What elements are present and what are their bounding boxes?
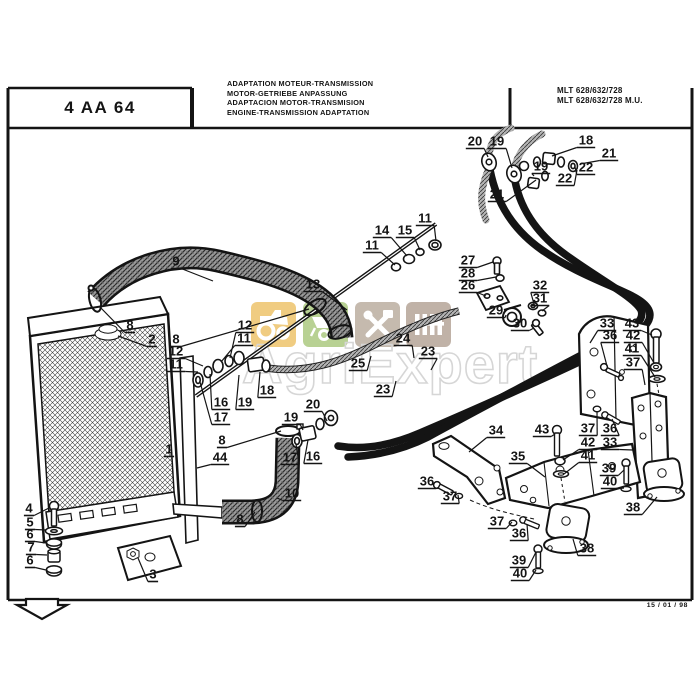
callout-leader	[35, 568, 46, 571]
callout-leader	[527, 524, 528, 541]
callout-label: 14	[375, 223, 390, 238]
callout-leader	[434, 226, 436, 242]
callout-label: 22	[579, 160, 593, 175]
callout-label: 36	[512, 526, 526, 541]
callout-label: 37	[581, 421, 595, 436]
callout-leader	[477, 262, 493, 268]
callout-label: 37	[443, 489, 457, 504]
callout-label: 15	[398, 223, 412, 238]
callout-label: 23	[376, 382, 390, 397]
callout-label: 41	[581, 448, 595, 463]
callout-label: 13	[306, 277, 320, 292]
callout-leader	[529, 328, 534, 331]
callout-label: 29	[489, 303, 503, 318]
callout-label: 35	[511, 449, 525, 464]
title-fr: ADAPTATION MOTEUR-TRANSMISSION	[227, 79, 373, 89]
callout-leader	[227, 431, 281, 448]
callout-label: 33	[603, 435, 617, 450]
callout-leader	[574, 170, 577, 186]
callout-leader	[392, 381, 396, 397]
callout-label: 21	[602, 146, 616, 161]
callout-leader	[185, 372, 198, 373]
callout-label: 44	[213, 450, 228, 465]
callout-label: 16	[214, 395, 228, 410]
callout-label: 20	[468, 134, 482, 149]
callout-label: 9	[172, 254, 179, 269]
title-de: MOTOR-GETRIEBE ANPASSUNG	[227, 89, 373, 99]
callout-label: 17	[283, 450, 297, 465]
callout-leader	[528, 552, 536, 568]
callout-label: 37	[626, 355, 640, 370]
revision-date: 15 / 01 / 98	[600, 602, 688, 609]
callout-label: 8	[236, 512, 243, 527]
callout-label: 20	[306, 397, 320, 412]
callout-label: 19	[238, 395, 252, 410]
callout-label: 3	[149, 567, 156, 582]
callout-label: 40	[513, 566, 527, 581]
callout-leader	[542, 306, 549, 312]
callout-label: 17	[214, 410, 228, 425]
callout-label: 18	[579, 133, 593, 148]
callout-label: 38	[580, 541, 594, 556]
callout-leader	[36, 555, 47, 556]
callout-leader	[505, 315, 506, 318]
plate-code: 4 AA 64	[8, 88, 192, 128]
callout-label: 38	[626, 500, 640, 515]
callout-label: 1	[165, 442, 172, 457]
callout-label: 4	[25, 501, 33, 516]
callout-label: 19	[284, 410, 298, 425]
callout-label: 36	[420, 474, 434, 489]
callout-label: 36	[603, 421, 617, 436]
callout-label: 24	[396, 331, 411, 346]
callout-label: 8	[126, 318, 133, 333]
callout-label: 11	[418, 211, 432, 226]
callout-label: 18	[260, 383, 274, 398]
callout-leader	[619, 450, 633, 451]
callout-leader	[469, 438, 487, 453]
callout-label: 10	[285, 486, 299, 501]
callout-label: 36	[603, 328, 617, 343]
callout-label: 11	[365, 238, 379, 253]
callout-label: 37	[490, 514, 504, 529]
callout-label: 19	[534, 159, 548, 174]
callout-label: 31	[533, 291, 547, 306]
callout-label: 21	[490, 187, 504, 202]
callout-label: 6	[26, 553, 33, 568]
model-line: MLT 628/632/728 M.U.	[557, 96, 643, 106]
callout-label: 26	[461, 278, 475, 293]
callout-label: 16	[306, 449, 320, 464]
callout-leader	[210, 374, 212, 410]
callout-label: 25	[351, 356, 365, 371]
callout-leader	[619, 488, 624, 489]
callout-leader	[477, 277, 496, 281]
callout-leader	[35, 530, 46, 531]
callout-label: 22	[558, 171, 572, 186]
callout-leader	[431, 359, 437, 371]
callout-leader	[552, 148, 577, 157]
parts-catalog-page: AgriExpert	[0, 0, 700, 700]
callout-label: 34	[489, 423, 504, 438]
model-list: MLT 628/632/728 MLT 628/632/728 M.U.	[557, 86, 643, 106]
callout-label: 8	[218, 433, 225, 448]
callout-leader	[506, 149, 512, 169]
callout-label: 40	[603, 474, 617, 489]
callout-label: 2	[148, 332, 155, 347]
callout-leader	[412, 346, 414, 359]
callout-leader	[367, 356, 371, 371]
callout-label: 30	[513, 316, 527, 331]
title-es: ADAPTACION MOTOR-TRANSMISION	[227, 98, 373, 108]
callout-label: 23	[421, 344, 435, 359]
drawing-titles: ADAPTATION MOTEUR-TRANSMISSION MOTOR-GET…	[227, 79, 373, 117]
down-arrow-icon	[17, 599, 67, 619]
callout-leader	[197, 465, 211, 469]
callout-label: 11	[169, 357, 183, 372]
callout-label: 43	[535, 422, 549, 437]
title-en: ENGINE-TRANSMISSION ADAPTATION	[227, 108, 373, 118]
callout-label: 41	[625, 341, 639, 356]
model-line: MLT 628/632/728	[557, 86, 643, 96]
callout-label: 19	[490, 134, 504, 149]
callout-label: 11	[237, 331, 251, 346]
